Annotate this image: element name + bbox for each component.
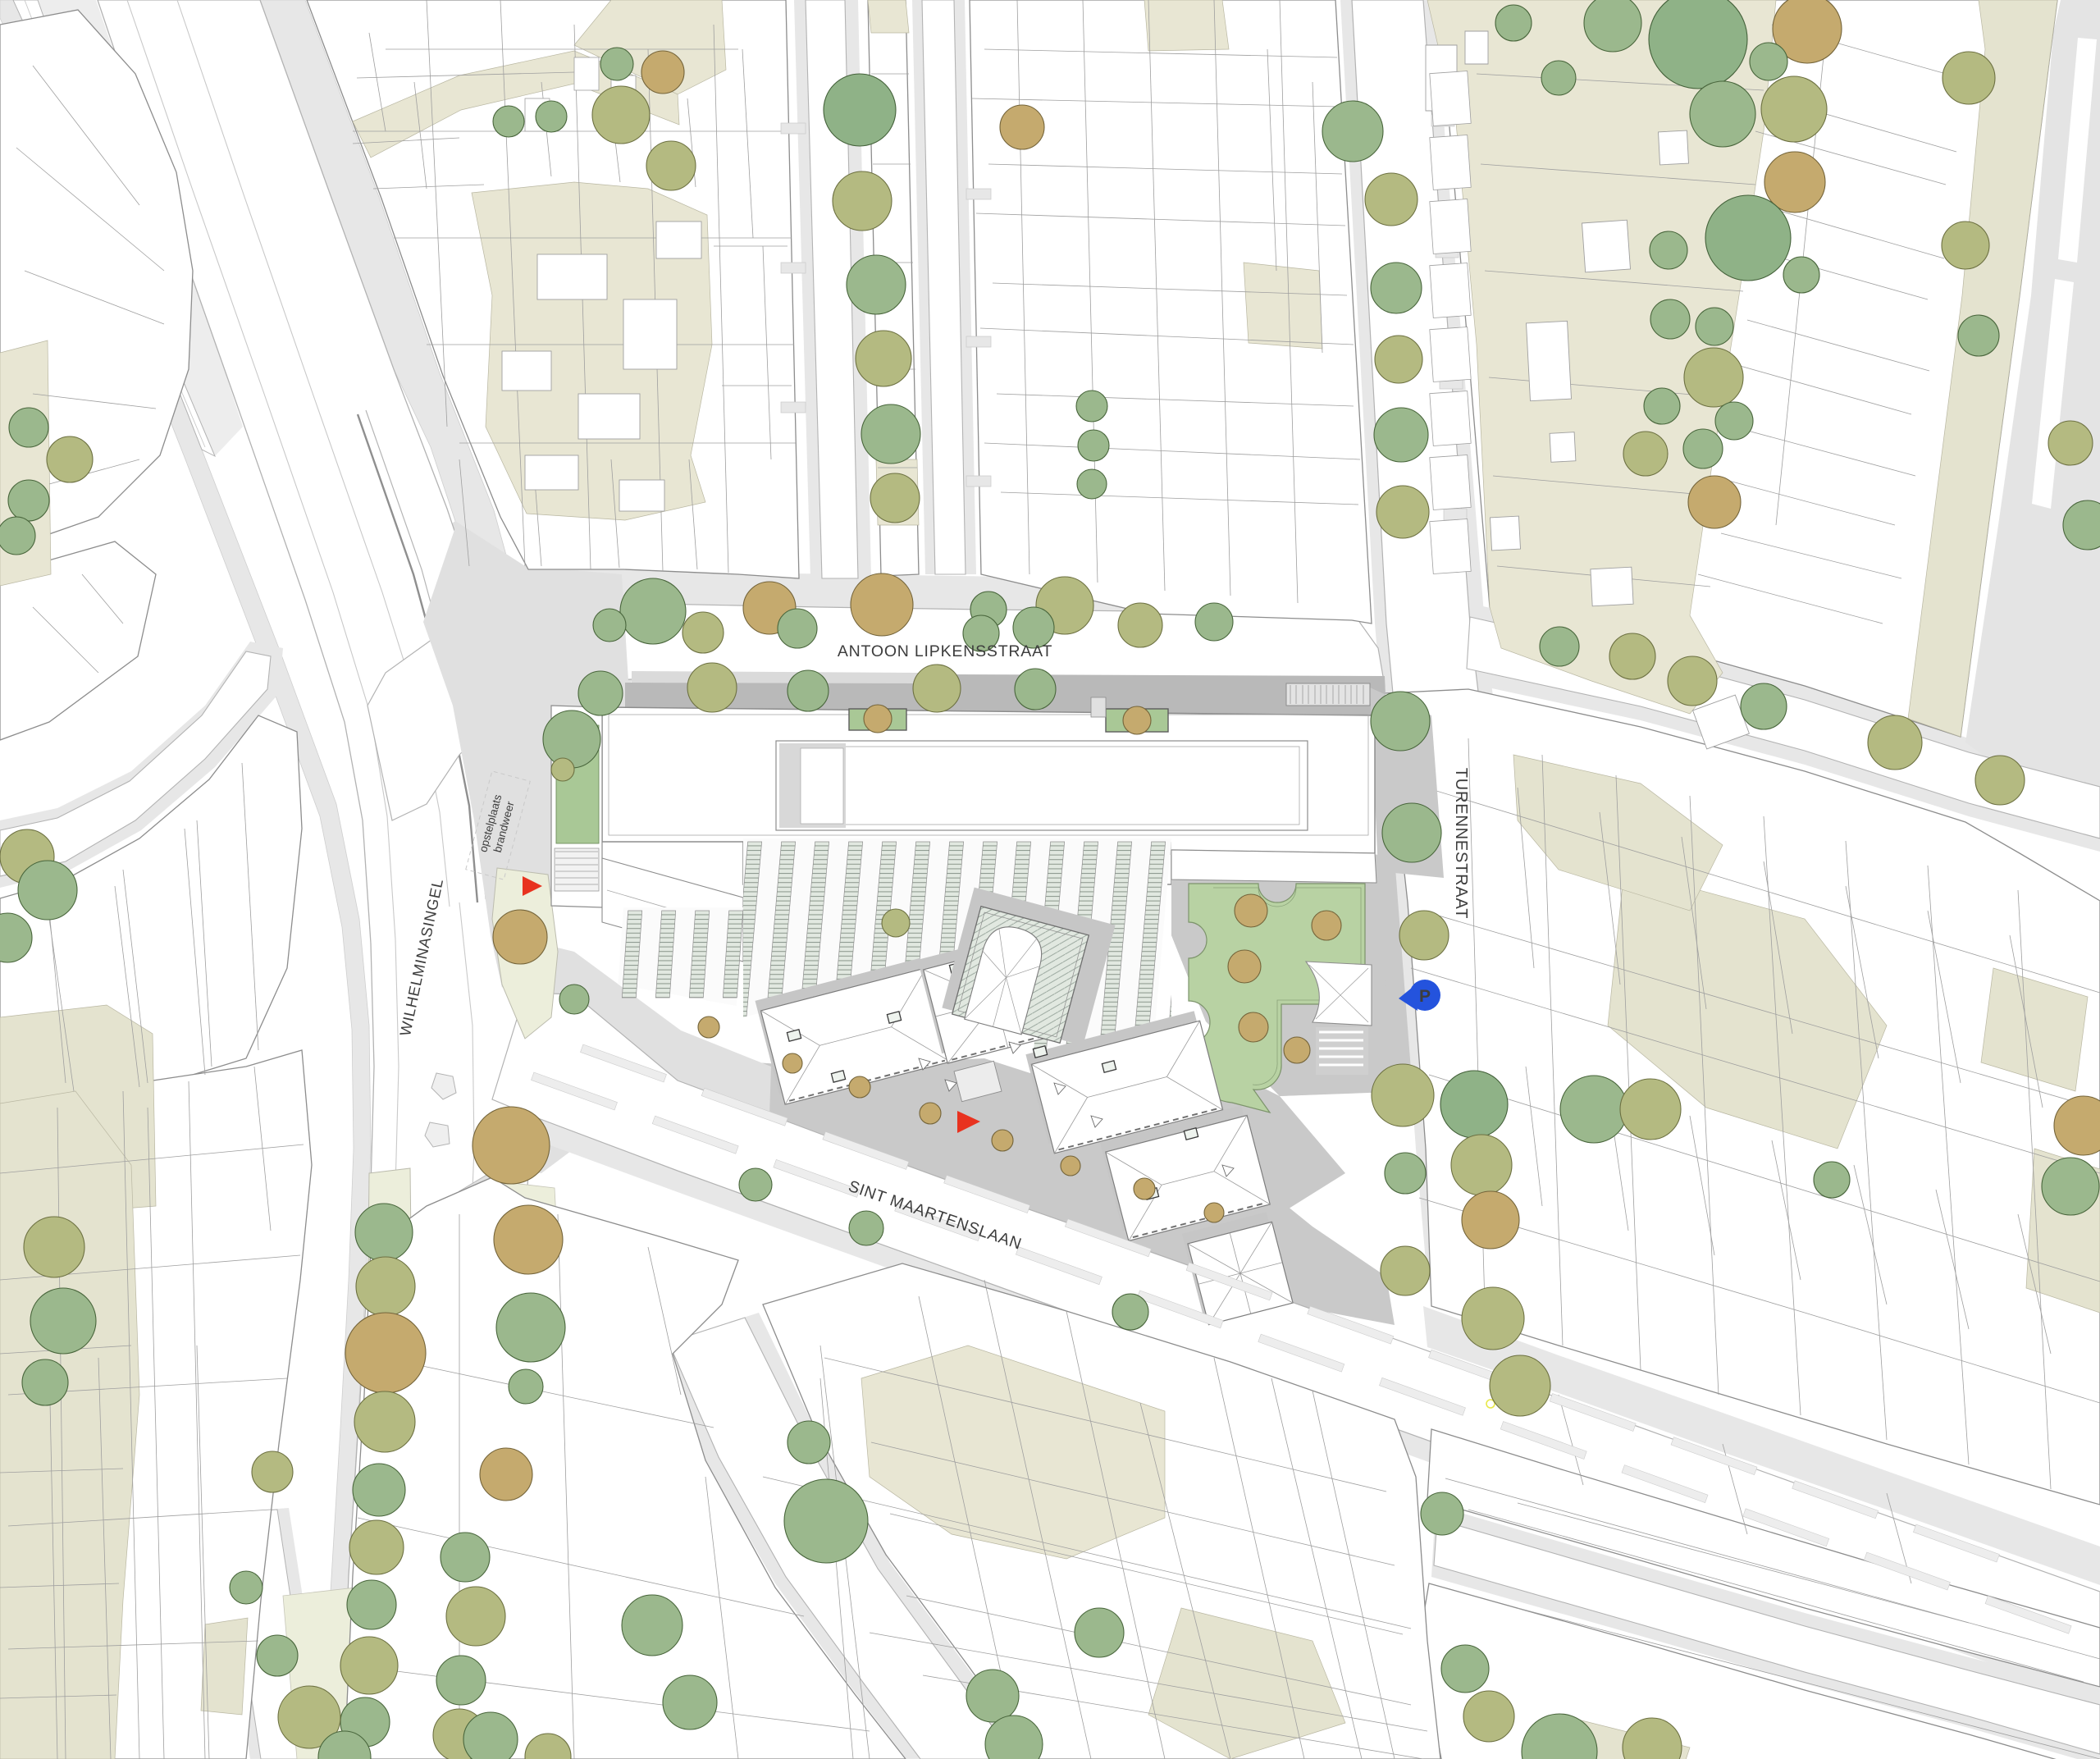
svg-text:TURENNESTRAAT: TURENNESTRAAT — [1452, 768, 1470, 919]
svg-text:P: P — [1419, 987, 1431, 1006]
svg-text:ANTOON LIPKENSSTRAAT: ANTOON LIPKENSSTRAAT — [838, 642, 1052, 660]
